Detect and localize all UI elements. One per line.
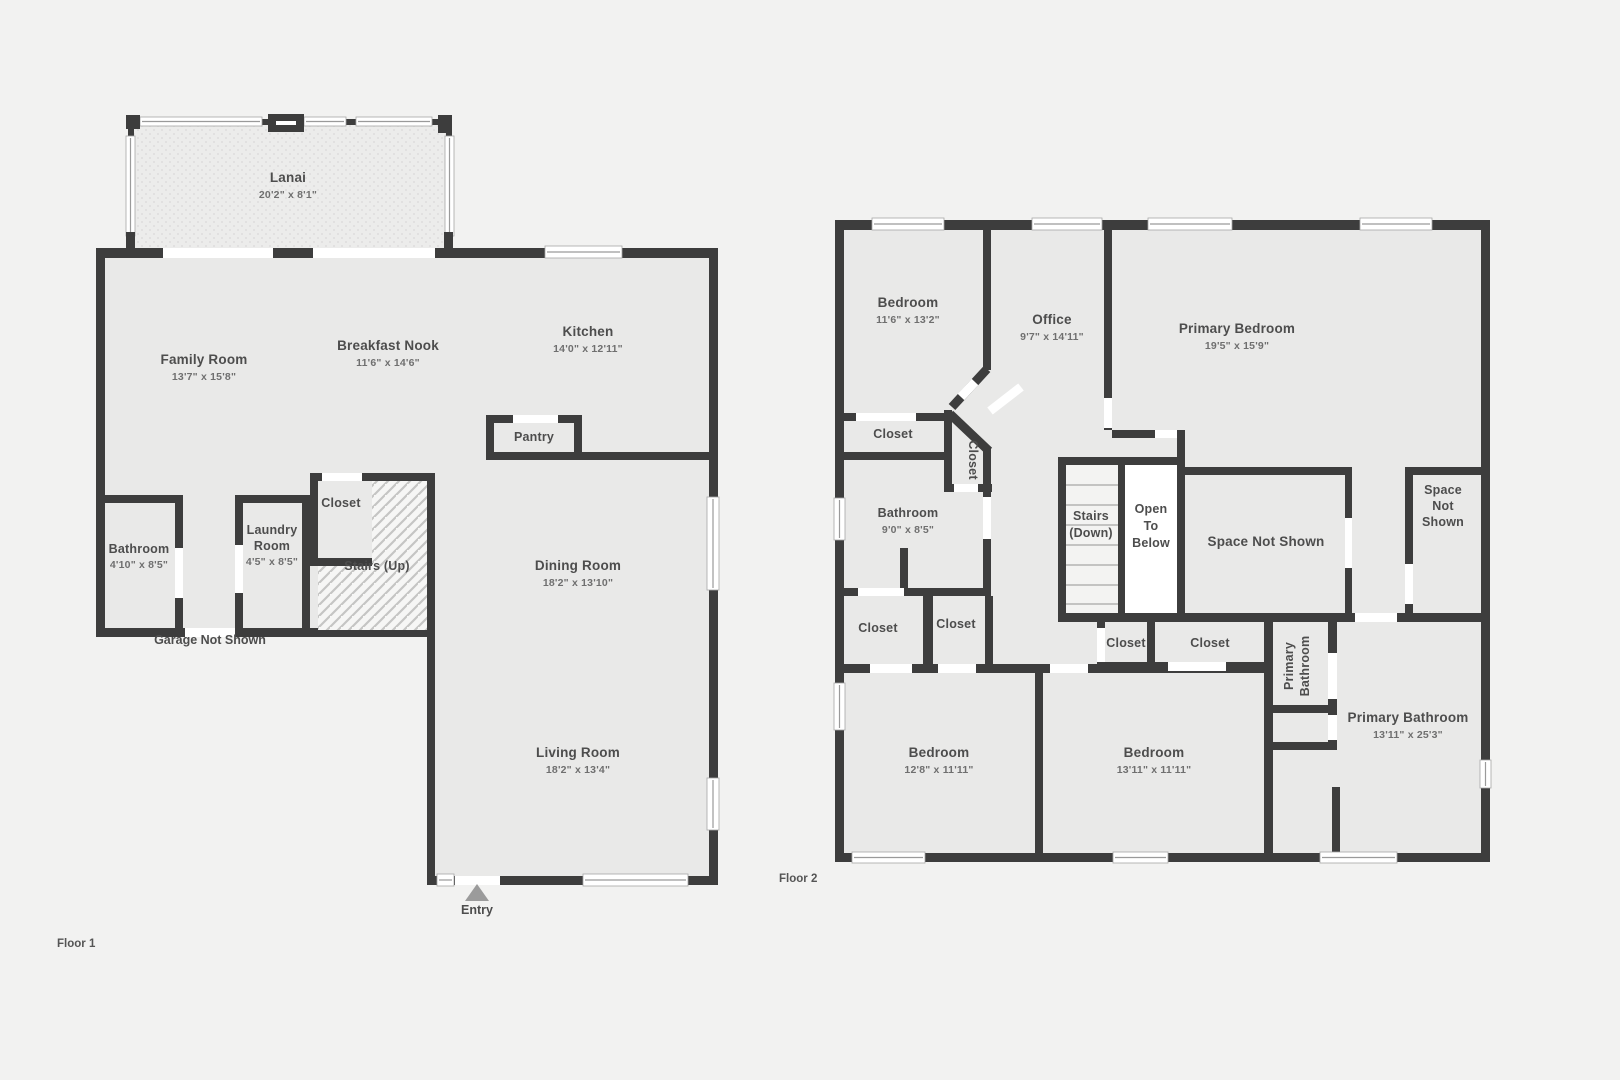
space-not-shown-right-line1: Space <box>1424 483 1462 497</box>
bathroom2-dims: 9'0" x 8'5" <box>882 524 934 536</box>
laundry-dims: 4'5" x 8'5" <box>246 556 298 568</box>
garage-note: Garage Not Shown <box>154 633 266 647</box>
angled-closet-label: Closet <box>966 440 980 480</box>
office-dims: 9'7" x 14'11" <box>1020 331 1084 343</box>
space-not-shown-right-line3: Shown <box>1422 515 1464 529</box>
space-not-shown-right-line2: Not <box>1432 499 1454 513</box>
laundry-label-line2: Room <box>254 539 290 553</box>
breakfast-nook-dims: 11'6" x 14'6" <box>356 357 420 369</box>
dining-room-label: Dining Room <box>535 558 621 573</box>
dining-room-dims: 18'2" x 13'10" <box>543 577 613 589</box>
family-room-dims: 13'7" x 15'8" <box>172 371 236 383</box>
family-room-label: Family Room <box>161 352 248 367</box>
bedroom1-dims: 11'6" x 13'2" <box>876 314 940 326</box>
closet-a-label: Closet <box>858 621 898 635</box>
closet-b-label: Closet <box>936 617 976 631</box>
open-to-below-line2: To <box>1144 519 1159 533</box>
primary-bedroom-dims: 19'5" x 15'9" <box>1205 340 1269 352</box>
lanai-label: Lanai <box>270 170 306 185</box>
bathroom1-dims: 4'10" x 8'5" <box>110 559 168 571</box>
bedroom1-label: Bedroom <box>878 295 939 310</box>
kitchen-dims: 14'0" x 12'11" <box>553 343 623 355</box>
stairs-down-label-line1: Stairs <box>1073 509 1109 523</box>
primary-bathroom-label: Primary Bathroom <box>1348 710 1469 725</box>
lanai-dims: 20'2" x 8'1" <box>259 189 317 201</box>
floorplan-page: Lanai 20'2" x 8'1" Family Room 13'7" x 1… <box>0 0 1620 1080</box>
pantry-label: Pantry <box>514 430 554 444</box>
closet-c-label: Closet <box>1106 636 1146 650</box>
open-to-below-line1: Open <box>1135 502 1168 516</box>
floorplan-drawing: Lanai 20'2" x 8'1" Family Room 13'7" x 1… <box>0 0 1620 1080</box>
closet1-label: Closet <box>321 496 361 510</box>
stairs-up-label: Stairs (Up) <box>344 559 409 573</box>
laundry-label-line1: Laundry <box>247 523 298 537</box>
primary-bedroom-label: Primary Bedroom <box>1179 321 1295 336</box>
bedroom2-label: Bedroom <box>909 745 970 760</box>
bedroom3-label: Bedroom <box>1124 745 1185 760</box>
floor2-plan: Bedroom 11'6" x 13'2" Office 9'7" x 14'1… <box>779 218 1491 885</box>
floor2-title: Floor 2 <box>779 873 817 885</box>
closet-d-label: Closet <box>1190 636 1230 650</box>
office-label: Office <box>1032 312 1072 327</box>
bathroom2-label: Bathroom <box>878 506 939 520</box>
living-room-dims: 18'2" x 13'4" <box>546 764 610 776</box>
open-to-below-line3: Below <box>1132 536 1170 550</box>
primary-bathroom-dims: 13'11" x 25'3" <box>1373 729 1443 741</box>
primary-bath-vertical-line2: Bathroom <box>1298 636 1312 697</box>
living-room-label: Living Room <box>536 745 620 760</box>
bedroom-closet-label: Closet <box>873 427 913 441</box>
bedroom2-dims: 12'8" x 11'11" <box>904 764 973 776</box>
space-not-shown-center-label: Space Not Shown <box>1207 534 1324 549</box>
breakfast-nook-label: Breakfast Nook <box>337 338 439 353</box>
primary-bath-vertical-line1: Primary <box>1282 642 1296 690</box>
floor1-title: Floor 1 <box>57 938 96 950</box>
entry-label: Entry <box>461 903 493 917</box>
bedroom3-dims: 13'11" x 11'11" <box>1117 764 1192 776</box>
bathroom1-label: Bathroom <box>109 542 170 556</box>
stairs-down-treads <box>1066 465 1118 621</box>
kitchen-label: Kitchen <box>563 324 614 339</box>
stairs-down-label-line2: (Down) <box>1069 526 1113 540</box>
